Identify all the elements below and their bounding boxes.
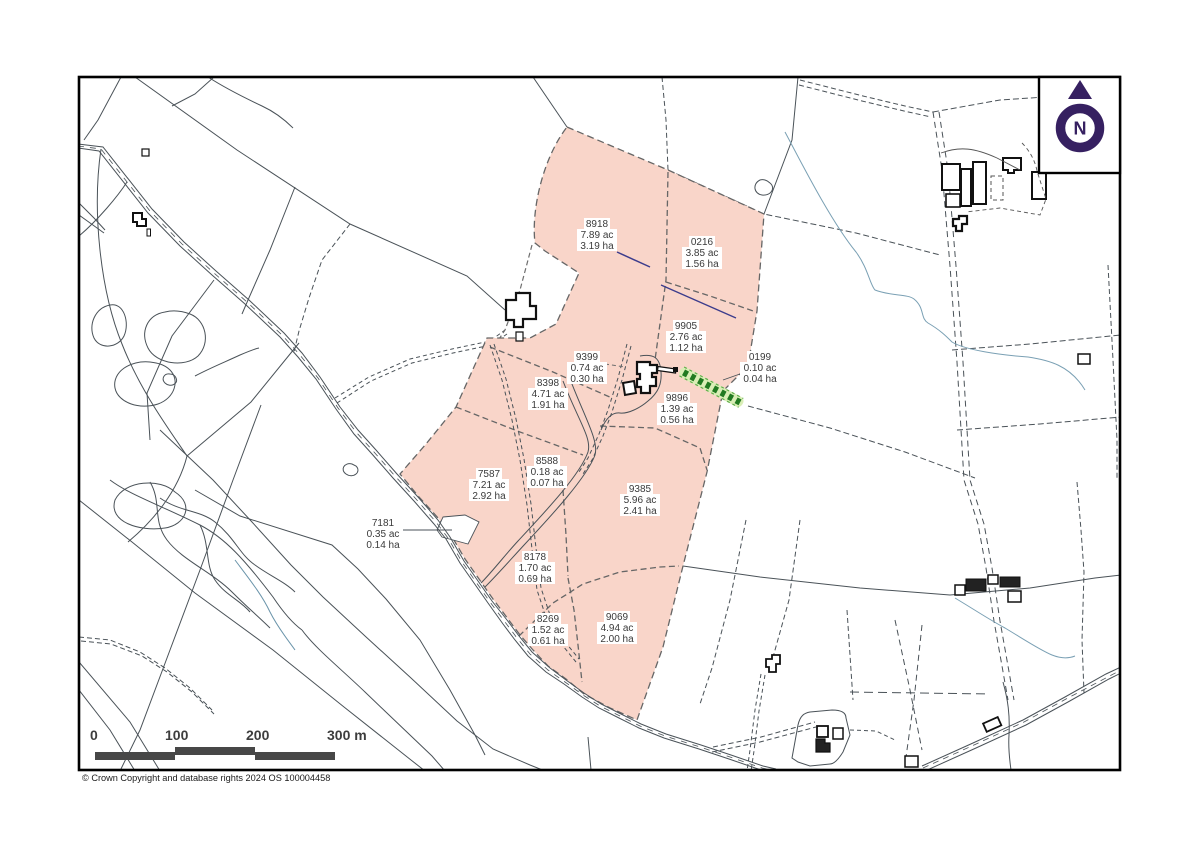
- svg-text:9905: 9905: [675, 321, 698, 332]
- svg-text:7.89 ac: 7.89 ac: [581, 230, 614, 241]
- svg-text:0.18 ac: 0.18 ac: [531, 467, 564, 478]
- svg-text:0.56 ha: 0.56 ha: [660, 415, 694, 426]
- svg-text:2.00 ha: 2.00 ha: [600, 634, 634, 645]
- svg-text:2.92 ha: 2.92 ha: [472, 491, 506, 502]
- svg-text:8178: 8178: [524, 552, 547, 563]
- svg-text:1.12 ha: 1.12 ha: [669, 343, 703, 354]
- svg-text:8918: 8918: [586, 219, 609, 230]
- svg-text:200: 200: [246, 727, 270, 743]
- svg-text:N: N: [1074, 119, 1087, 139]
- svg-text:2.41 ha: 2.41 ha: [623, 506, 657, 517]
- svg-text:0.07 ha: 0.07 ha: [530, 478, 564, 489]
- svg-text:0199: 0199: [749, 352, 772, 363]
- svg-text:9896: 9896: [666, 393, 689, 404]
- svg-text:1.39 ac: 1.39 ac: [661, 404, 694, 415]
- svg-text:7.21 ac: 7.21 ac: [473, 480, 506, 491]
- svg-text:0.14 ha: 0.14 ha: [366, 540, 400, 551]
- svg-text:1.56 ha: 1.56 ha: [685, 259, 719, 270]
- svg-text:2.76 ac: 2.76 ac: [670, 332, 703, 343]
- svg-text:9385: 9385: [629, 484, 652, 495]
- svg-text:3.85 ac: 3.85 ac: [686, 248, 719, 259]
- svg-text:1.91 ha: 1.91 ha: [531, 400, 565, 411]
- svg-text:8398: 8398: [537, 378, 560, 389]
- svg-text:5.96 ac: 5.96 ac: [624, 495, 657, 506]
- svg-text:4.71 ac: 4.71 ac: [532, 389, 565, 400]
- svg-text:0216: 0216: [691, 237, 714, 248]
- svg-text:1.70 ac: 1.70 ac: [519, 563, 552, 574]
- svg-text:7181: 7181: [372, 518, 395, 529]
- svg-text:4.94 ac: 4.94 ac: [601, 623, 634, 634]
- svg-text:© Crown Copyright and database: © Crown Copyright and database rights 20…: [82, 773, 330, 783]
- svg-text:0.04 ha: 0.04 ha: [743, 374, 777, 385]
- svg-text:0.30 ha: 0.30 ha: [570, 374, 604, 385]
- svg-text:8269: 8269: [537, 614, 560, 625]
- svg-text:0.61 ha: 0.61 ha: [531, 636, 565, 647]
- svg-text:9069: 9069: [606, 612, 629, 623]
- svg-text:1.52 ac: 1.52 ac: [532, 625, 565, 636]
- svg-text:100: 100: [165, 727, 189, 743]
- svg-text:7587: 7587: [478, 469, 501, 480]
- svg-text:9399: 9399: [576, 352, 599, 363]
- svg-text:300 m: 300 m: [327, 727, 367, 743]
- svg-text:0.10 ac: 0.10 ac: [744, 363, 777, 374]
- svg-text:0: 0: [90, 727, 98, 743]
- svg-text:0.35 ac: 0.35 ac: [367, 529, 400, 540]
- svg-text:0.69 ha: 0.69 ha: [518, 574, 552, 585]
- svg-text:3.19 ha: 3.19 ha: [580, 241, 614, 252]
- svg-text:8588: 8588: [536, 456, 559, 467]
- svg-text:0.74 ac: 0.74 ac: [571, 363, 604, 374]
